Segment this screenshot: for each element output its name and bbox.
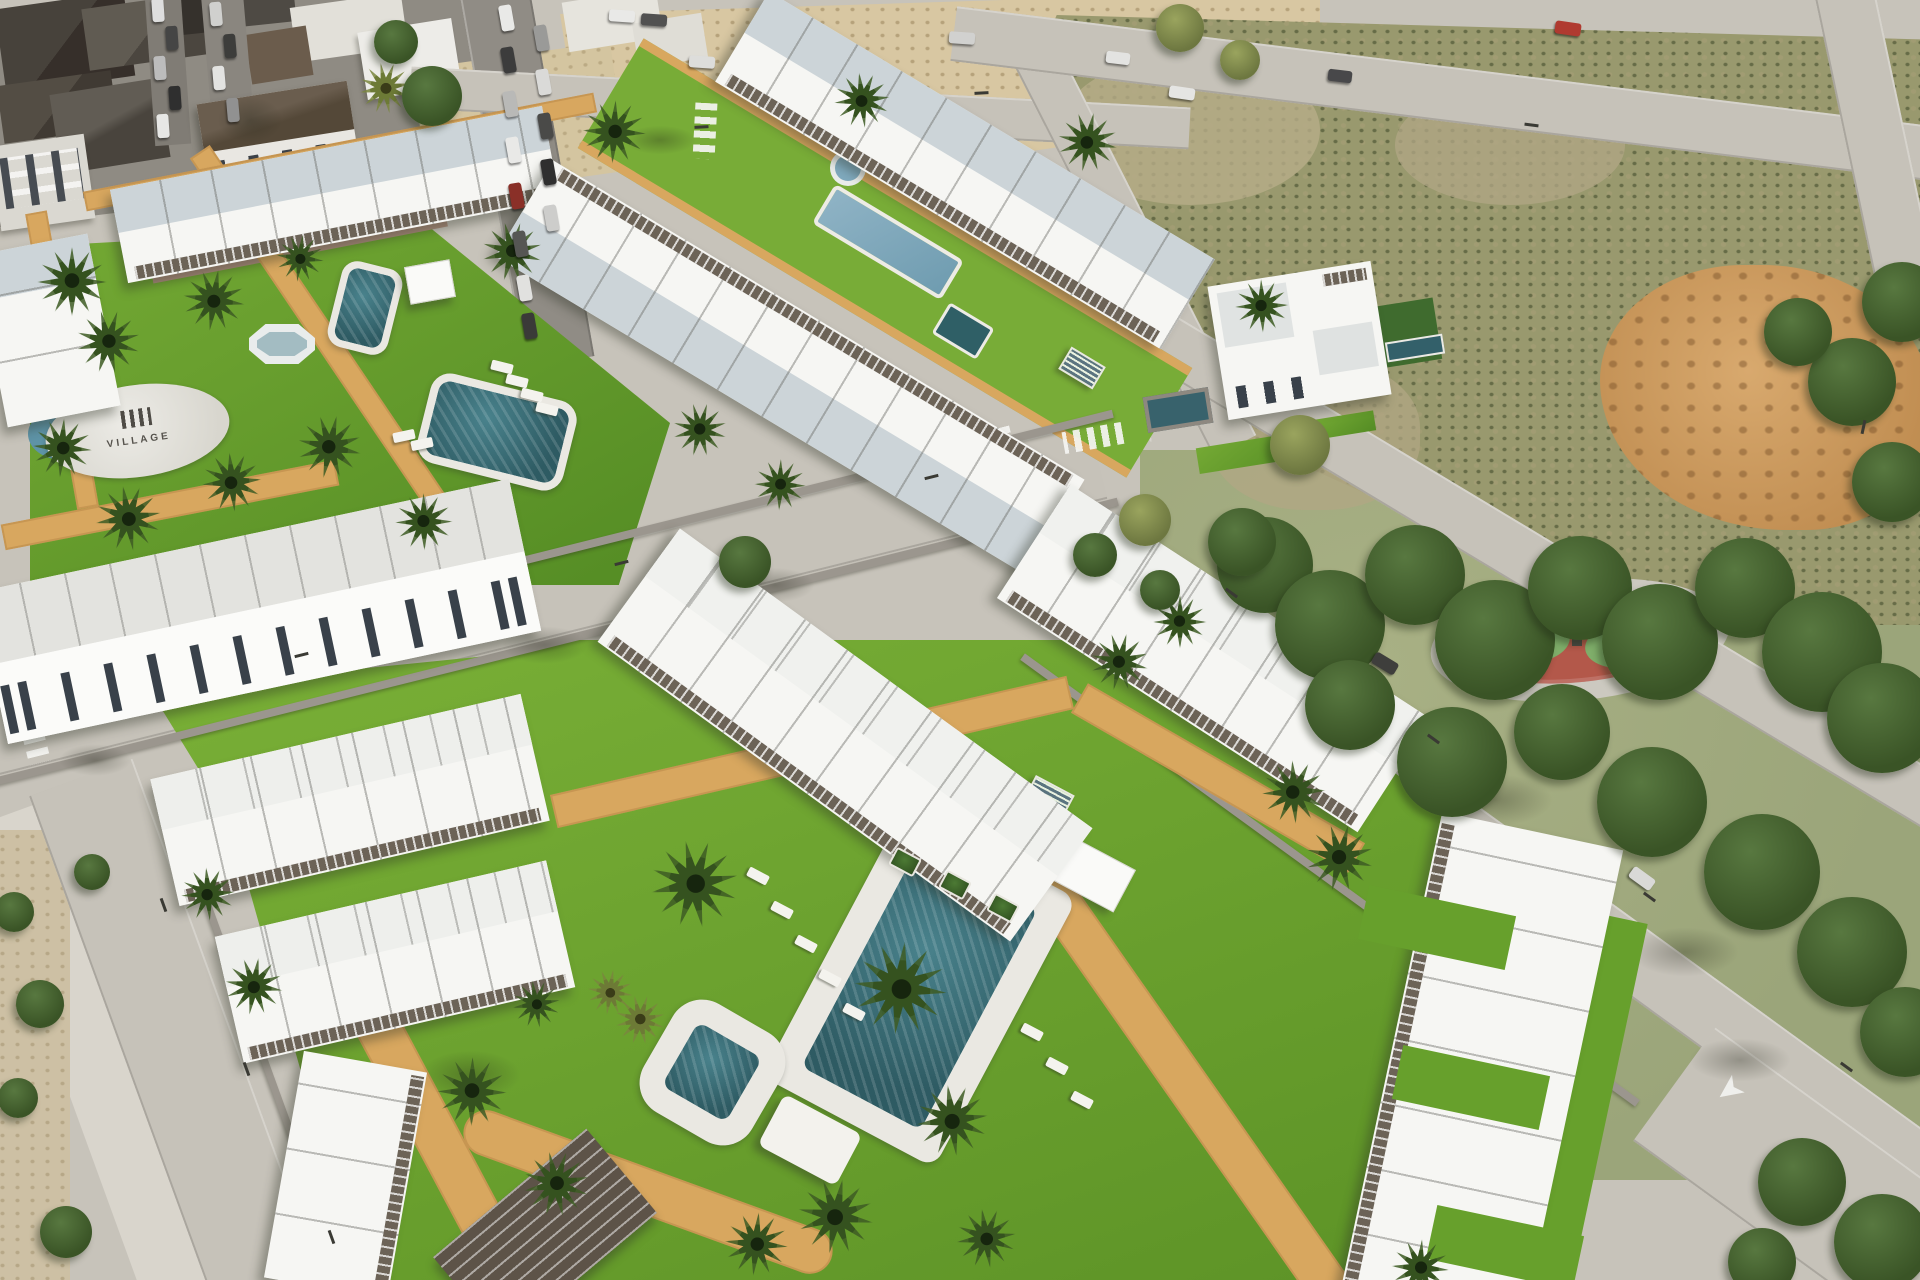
tree [1597,747,1707,857]
tree [1156,4,1204,52]
tree [74,854,110,890]
car [156,114,170,139]
tree [1758,1138,1846,1226]
car [226,98,240,123]
car [689,55,716,69]
tree-shadow [1670,1030,1810,1090]
fountain-octagon [249,324,315,364]
tree [1764,298,1832,366]
car [209,2,223,27]
villa-pergola [1322,268,1367,287]
tree-shadow [205,88,295,152]
tree [1119,494,1171,546]
car [168,86,182,111]
car [212,66,226,91]
fountain-water [257,332,307,356]
pool-house-cube [404,259,456,304]
tree [1270,415,1330,475]
car [641,13,668,27]
tree [1397,707,1507,817]
car [165,26,179,51]
tree [1073,533,1117,577]
villa-roof [1313,321,1379,375]
car [151,0,165,22]
town-roof-brown [244,25,313,84]
tree [1704,814,1820,930]
scene: ➤ VILLAGE [0,0,1920,1280]
tree [374,20,418,64]
tree [402,66,462,126]
tree-shadow [45,738,145,782]
car [223,34,237,59]
pool-water [333,266,397,349]
tree [1208,508,1276,576]
tree [1140,570,1180,610]
tree [1305,660,1395,750]
villa-windows [1235,374,1317,408]
car [1554,20,1582,36]
town-apartment-windows [0,147,85,209]
car [949,31,976,45]
tree [719,536,771,588]
crosswalk [693,102,718,159]
villa [1207,261,1391,420]
tree [16,980,64,1028]
car [609,9,636,23]
tree [40,1206,92,1258]
palm-tree [667,397,733,463]
tree [1220,40,1260,80]
tree [1514,684,1610,780]
car [153,56,167,81]
plaza-logo-mark [120,407,152,429]
